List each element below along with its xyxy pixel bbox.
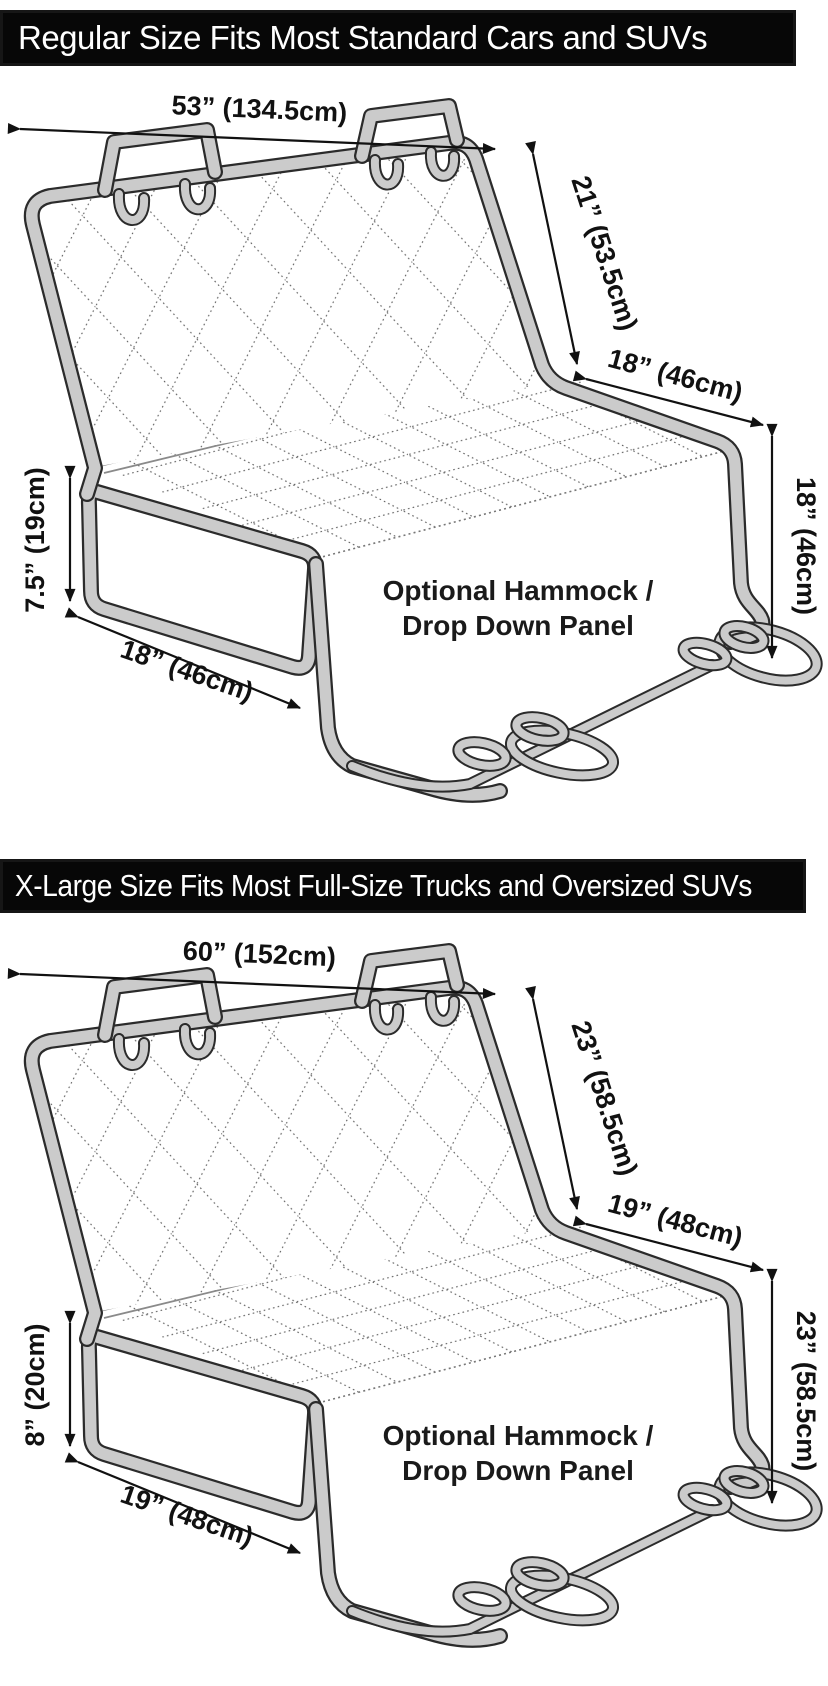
dim-right-drop-label: 18” (46cm) <box>791 477 821 615</box>
hammock-note-line2: Drop Down Panel <box>402 610 634 641</box>
size-banner-xlarge: X-Large Size Fits Most Full-Size Trucks … <box>0 859 806 913</box>
dim-flap-height-label: 7.5” (19cm) <box>20 467 50 613</box>
seat-cover-drawing <box>20 106 823 795</box>
dim-backrest-height-label: 23” (58.5cm) <box>565 1017 643 1179</box>
size-banner-xlarge-label: X-Large Size Fits Most Full-Size Trucks … <box>3 868 752 904</box>
dim-right-drop-label: 23” (58.5cm) <box>791 1311 821 1472</box>
page: Regular Size Fits Most Standard Cars and… <box>0 0 828 1686</box>
dim-top-width-label: 53” (134.5cm) <box>171 90 348 128</box>
seat-cover-diagram-regular: 53” (134.5cm) 21” (53.5cm) 18” (46cm) 18… <box>0 88 828 828</box>
seat-cover-diagram-xlarge: 60” (152cm) 23” (58.5cm) 19” (48cm) 23” … <box>0 933 828 1673</box>
hammock-note-line1: Optional Hammock / <box>383 575 654 606</box>
seat-cover-drawing <box>20 951 823 1640</box>
dim-seat-depth-label: 18” (46cm) <box>605 343 746 408</box>
dim-top-width-label: 60” (152cm) <box>182 936 336 973</box>
dim-flap-height-label: 8” (20cm) <box>20 1323 50 1446</box>
size-banner-regular: Regular Size Fits Most Standard Cars and… <box>0 10 796 66</box>
dim-backrest-height-label: 21” (53.5cm) <box>565 172 643 334</box>
size-banner-regular-label: Regular Size Fits Most Standard Cars and… <box>3 19 707 57</box>
hammock-note-line2: Drop Down Panel <box>402 1455 634 1486</box>
dim-seat-depth-label: 19” (48cm) <box>605 1188 746 1253</box>
hammock-note-line1: Optional Hammock / <box>383 1420 654 1451</box>
